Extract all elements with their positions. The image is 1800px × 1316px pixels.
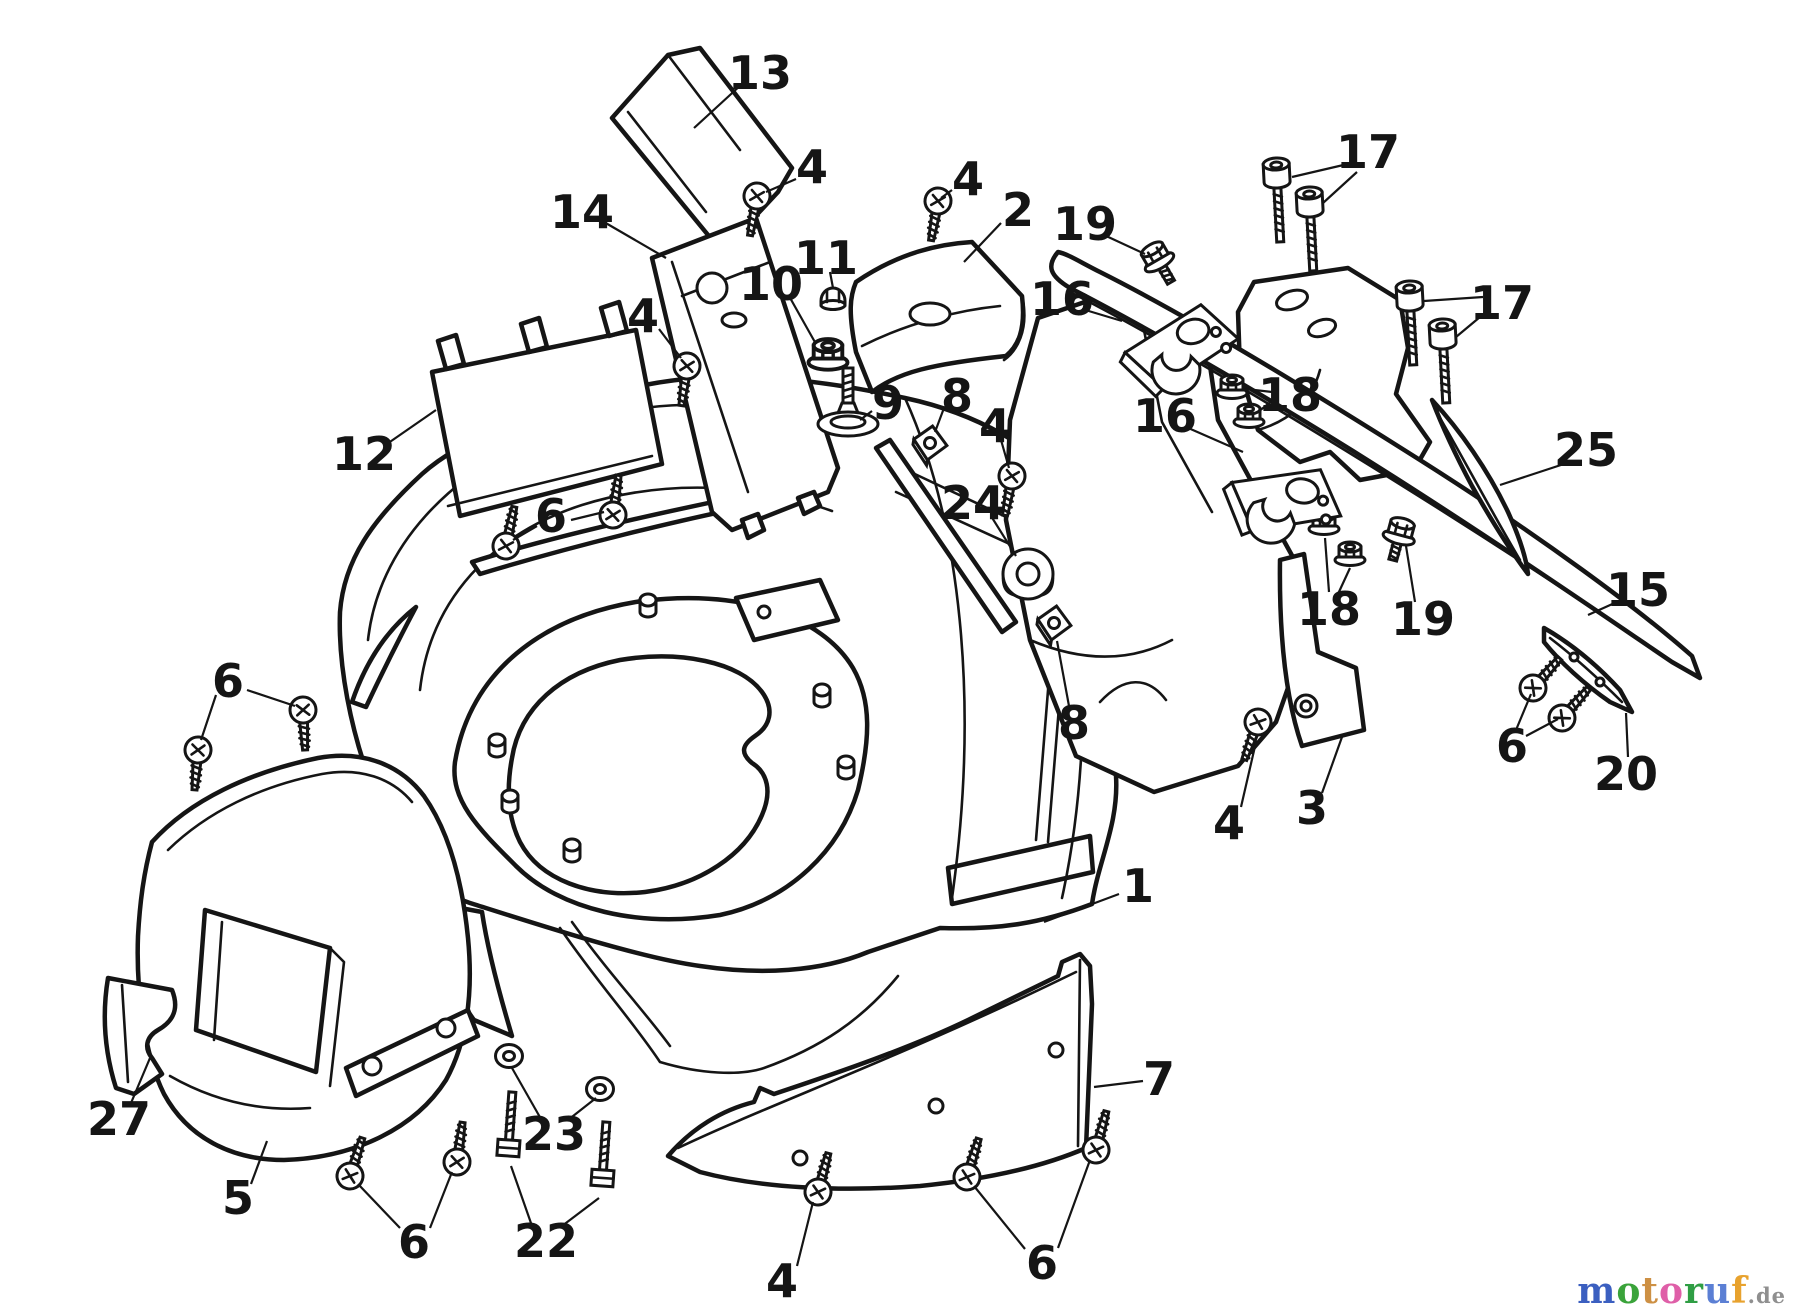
watermark-letter: r xyxy=(1684,1270,1704,1312)
flange-nut-icon xyxy=(809,339,848,370)
leader-line xyxy=(430,1172,452,1228)
callout-number-9: 9 xyxy=(872,376,904,430)
watermark-letter: o xyxy=(1616,1270,1641,1312)
callout-number-14: 14 xyxy=(550,185,614,239)
callout-number-13: 13 xyxy=(728,46,792,100)
part-side-skirt-7 xyxy=(668,954,1092,1189)
diagram-page: 1344219161717141110124984241618181925158… xyxy=(0,0,1800,1316)
callout-number-4: 4 xyxy=(627,289,659,343)
callout-number-11: 11 xyxy=(794,231,858,285)
stud-icon xyxy=(838,756,854,779)
leader-line xyxy=(358,1184,400,1228)
watermark-letter: m xyxy=(1577,1270,1616,1312)
pan-screw-icon xyxy=(182,736,213,791)
leader-line xyxy=(974,1186,1025,1249)
callout-number-6: 6 xyxy=(398,1215,430,1269)
stud-icon xyxy=(814,684,830,707)
flange-nut-icon xyxy=(1217,375,1247,399)
callout-number-18: 18 xyxy=(1297,582,1361,636)
flange-bolt-icon xyxy=(1377,514,1419,564)
callout-number-20: 20 xyxy=(1594,747,1658,801)
callout-number-5: 5 xyxy=(222,1171,254,1225)
callout-number-6: 6 xyxy=(535,489,567,543)
pan-screw-icon xyxy=(442,1121,475,1177)
stud-icon xyxy=(489,734,505,757)
leader-line xyxy=(247,690,295,706)
flange-bolt-icon xyxy=(1136,237,1185,290)
watermark-logo[interactable]: motoruf.de xyxy=(1577,1270,1786,1312)
callout-number-17: 17 xyxy=(1336,125,1400,179)
watermark-letter: o xyxy=(1659,1270,1684,1312)
part-trim-strip-20 xyxy=(1544,628,1632,712)
socket-screw-icon xyxy=(1296,186,1326,271)
socket-screw-icon xyxy=(1263,157,1293,242)
callout-number-10: 10 xyxy=(739,257,803,311)
callout-number-12: 12 xyxy=(332,427,396,481)
part-discharge-chute xyxy=(138,756,478,1160)
callout-number-25: 25 xyxy=(1554,423,1618,477)
pan-screw-icon xyxy=(1515,650,1570,707)
washer-icon xyxy=(587,1078,614,1101)
leader-line xyxy=(1058,1160,1090,1248)
carriage-bolt-icon xyxy=(591,1121,617,1186)
cap-nut-icon xyxy=(821,288,845,310)
callout-number-18: 18 xyxy=(1258,368,1322,422)
callout-number-6: 6 xyxy=(1496,719,1528,773)
stud-icon xyxy=(564,839,580,862)
part-cover-plate-2 xyxy=(851,242,1025,392)
callout-number-2: 2 xyxy=(1002,183,1034,237)
callout-number-16: 16 xyxy=(1133,389,1197,443)
bushing-icon xyxy=(1003,549,1053,599)
callout-number-3: 3 xyxy=(1296,781,1328,835)
deck-center-opening xyxy=(509,657,770,894)
callout-number-27: 27 xyxy=(87,1092,151,1146)
pan-screw-icon xyxy=(1544,680,1599,737)
callout-number-23: 23 xyxy=(522,1107,586,1161)
callout-number-4: 4 xyxy=(952,152,984,206)
callout-number-4: 4 xyxy=(979,399,1011,453)
stud-icon xyxy=(502,790,518,813)
callout-number-16: 16 xyxy=(1030,272,1094,326)
watermark-letter: u xyxy=(1704,1270,1731,1312)
flange-nut-icon xyxy=(1335,542,1365,566)
pan-screw-icon xyxy=(918,186,953,243)
callout-number-19: 19 xyxy=(1053,197,1117,251)
callout-number-7: 7 xyxy=(1143,1052,1175,1106)
callout-number-8: 8 xyxy=(941,369,973,423)
callout-number-8: 8 xyxy=(1058,696,1090,750)
watermark-letter: f xyxy=(1731,1270,1748,1312)
parts-diagram: 1344219161717141110124984241618181925158… xyxy=(0,0,1800,1316)
callout-number-4: 4 xyxy=(1213,796,1245,850)
washer-icon xyxy=(496,1045,523,1068)
callout-number-6: 6 xyxy=(212,654,244,708)
stud-icon xyxy=(640,594,656,617)
callout-number-1: 1 xyxy=(1122,859,1154,913)
watermark-letter: t xyxy=(1641,1270,1659,1312)
watermark-tld: .de xyxy=(1748,1283,1786,1308)
callout-number-4: 4 xyxy=(796,140,828,194)
callout-number-15: 15 xyxy=(1606,563,1670,617)
callout-number-4: 4 xyxy=(766,1254,798,1308)
carriage-bolt-icon xyxy=(497,1091,523,1156)
callout-number-6: 6 xyxy=(1026,1236,1058,1290)
callout-number-24: 24 xyxy=(941,476,1005,530)
socket-screw-icon xyxy=(1429,318,1459,403)
callout-number-17: 17 xyxy=(1470,276,1534,330)
leader-line xyxy=(1094,1081,1143,1087)
leader-line xyxy=(797,1202,813,1266)
callout-number-19: 19 xyxy=(1391,592,1455,646)
callout-number-22: 22 xyxy=(514,1214,578,1268)
